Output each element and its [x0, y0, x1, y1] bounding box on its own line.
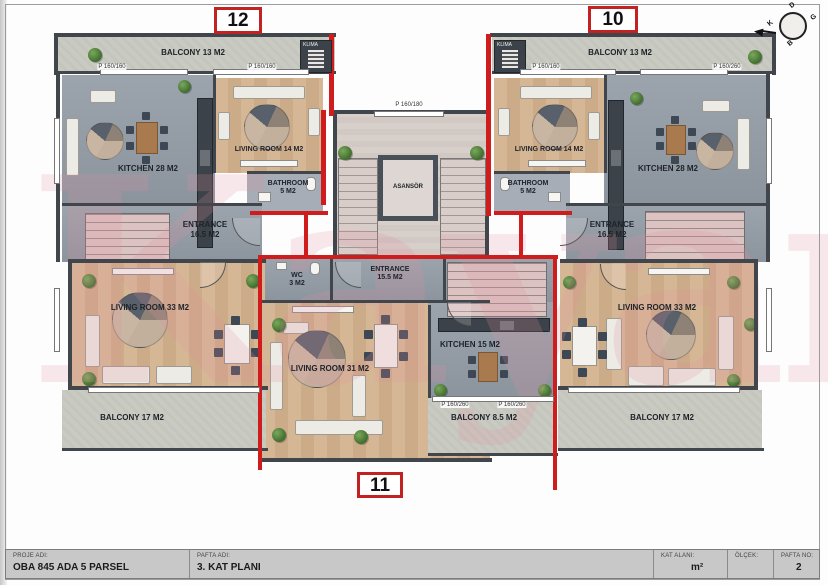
entrance-right-line1: ENTRANCE [590, 220, 634, 229]
plant [354, 430, 368, 444]
chair [562, 350, 571, 359]
wall [485, 216, 489, 258]
living-31-label: LIVING ROOM 31 M2 [291, 364, 369, 373]
proje-adi-value: OBA 845 ADA 5 PARSEL [13, 562, 129, 573]
pafta-no-label: PAFTA NO: [781, 553, 813, 559]
chair [656, 128, 664, 136]
chair [214, 348, 223, 357]
dining-table [478, 352, 498, 382]
chair [671, 156, 679, 164]
stairs-lower-left [85, 213, 170, 262]
compass-west-letter: B [786, 39, 794, 48]
tv-console [112, 268, 174, 275]
entrance-mid-line2: 15.5 M2 [377, 274, 402, 281]
wall [330, 259, 333, 300]
balcony-13-right-label: BALCONY 13 M2 [588, 48, 652, 57]
wall [604, 75, 607, 173]
wall [54, 33, 336, 37]
living-33-left-label: LIVING ROOM 33 M2 [111, 303, 189, 312]
armchair [588, 112, 600, 140]
armchair [308, 108, 320, 136]
chair [142, 156, 150, 164]
armchair [498, 108, 510, 136]
window-label: P 160/260 [440, 402, 469, 408]
chair [656, 142, 664, 150]
kat-alani-label: KAT ALANI: [661, 553, 694, 559]
stairs-lower-right [645, 211, 745, 262]
window [766, 288, 772, 352]
entrance-mid-label: ENTRANCE15.5 M2 [371, 266, 410, 282]
chair [578, 318, 587, 327]
chair [364, 352, 373, 361]
armchair [90, 90, 116, 103]
title-block: PROJE ADI: OBA 845 ADA 5 PARSEL PAFTA AD… [5, 549, 820, 579]
chair [468, 356, 476, 364]
chair [500, 356, 508, 364]
sofa [668, 368, 716, 386]
kat-alani-value: m² [691, 562, 703, 573]
tv-console [292, 306, 354, 313]
entrance-right-label: ENTRANCE16.5 M2 [590, 220, 634, 240]
stove [200, 150, 210, 166]
chair [468, 370, 476, 378]
red-wall [304, 215, 308, 259]
wall [494, 171, 570, 174]
window-label: P 160/160 [247, 64, 276, 70]
bathroom-left-label: BATHROOM5 M2 [268, 180, 309, 196]
living-14-left-label: LIVING ROOM 14 M2 [235, 146, 303, 153]
balcony-13-left-label: BALCONY 13 M2 [161, 48, 225, 57]
plant [272, 428, 286, 442]
round-rug [244, 104, 290, 150]
sofa [66, 118, 79, 176]
round-rug [86, 122, 124, 160]
window [54, 288, 60, 352]
wall [428, 305, 431, 398]
plant [630, 92, 643, 105]
red-wall [321, 110, 326, 205]
sofa [270, 342, 283, 410]
window [766, 118, 772, 184]
chair [126, 142, 134, 150]
bathroom-left-line2: 5 M2 [280, 188, 296, 195]
chair [671, 116, 679, 124]
sofa [295, 420, 383, 435]
bathroom-right-line2: 5 M2 [520, 188, 536, 195]
wall [333, 112, 337, 258]
sofa [156, 366, 192, 384]
title-block-divider [653, 550, 654, 578]
entrance-mid-line1: ENTRANCE [371, 266, 410, 273]
round-rug [532, 104, 578, 150]
chair [160, 142, 168, 150]
olcek-label: ÖLÇEK: [735, 553, 758, 559]
kitchen-15-label: KITCHEN 15 M2 [440, 340, 500, 349]
dining-table [136, 122, 158, 154]
round-rug [696, 132, 734, 170]
kitchen-28-right-label: KITCHEN 28 M2 [638, 164, 698, 173]
wall [68, 259, 266, 263]
balcony-rail [568, 387, 740, 393]
compass: K D G B [752, 2, 824, 48]
wall [213, 75, 216, 173]
armchair [702, 100, 730, 112]
klima-vent [502, 50, 518, 68]
unit-10-label: 10 [588, 6, 638, 33]
proje-adi-label: PROJE ADI: [13, 553, 48, 559]
tv-console [528, 160, 586, 167]
wall [428, 453, 558, 456]
entrance-left-label: ENTRANCE16.5 M2 [183, 220, 227, 240]
red-wall [494, 211, 572, 215]
stairs-hall-left [338, 158, 378, 255]
red-wall [250, 211, 328, 215]
compass-circle [779, 12, 807, 40]
compass-east-letter: D [788, 1, 796, 10]
chair [399, 352, 408, 361]
wall [566, 203, 766, 206]
armchair [218, 112, 230, 140]
chair [688, 128, 696, 136]
chair [142, 112, 150, 120]
chair [500, 370, 508, 378]
window [374, 111, 444, 117]
wall [54, 33, 58, 75]
title-block-divider [773, 550, 774, 578]
dining-table [572, 326, 597, 366]
balcony-rail [88, 387, 260, 393]
elevator-label: ASANSÖR [393, 184, 423, 190]
plant [272, 318, 286, 332]
plant [178, 80, 191, 93]
plant [82, 274, 96, 288]
chair [231, 366, 240, 375]
chair [231, 316, 240, 325]
round-rug [112, 292, 168, 348]
wall [68, 259, 72, 390]
stove [500, 321, 514, 330]
klima-vent [308, 50, 324, 68]
sofa [85, 315, 100, 367]
kitchen-28-left-label: KITCHEN 28 M2 [118, 164, 178, 173]
living-14-right-label: LIVING ROOM 14 M2 [515, 146, 583, 153]
north-arrow-line [762, 30, 776, 34]
chair [688, 142, 696, 150]
klima-right-label: KLIMA [497, 42, 512, 48]
plant [338, 146, 352, 160]
balcony-17-right-label: BALCONY 17 M2 [630, 413, 694, 422]
sofa [352, 375, 366, 417]
window-label: P 160/260 [712, 64, 741, 70]
chair [160, 126, 168, 134]
bathroom-right-line1: BATHROOM [508, 180, 549, 187]
chair [381, 369, 390, 378]
window-label: P 160/180 [394, 102, 423, 108]
sofa [102, 366, 150, 384]
living-33-right-label: LIVING ROOM 33 M2 [618, 303, 696, 312]
stairs-hall-right [440, 158, 486, 255]
wc-line1: WC [291, 272, 303, 279]
sofa [737, 118, 750, 170]
chair [598, 332, 607, 341]
red-wall [258, 255, 558, 259]
wall [247, 171, 323, 174]
pafta-adi-label: PAFTA ADI: [197, 553, 230, 559]
wall [443, 259, 446, 302]
window [54, 118, 60, 184]
title-block-divider [189, 550, 190, 578]
sofa [628, 366, 664, 386]
chair [399, 330, 408, 339]
red-wall [553, 255, 557, 490]
plant [88, 48, 102, 62]
red-wall [258, 255, 262, 470]
title-block-divider [727, 550, 728, 578]
dining-table [666, 125, 686, 155]
wall [754, 259, 758, 390]
plant [82, 372, 96, 386]
sink [276, 262, 287, 270]
bathroom-left-line1: BATHROOM [268, 180, 309, 187]
red-wall [486, 34, 491, 216]
round-rug [288, 330, 346, 388]
pafta-adi-value: 3. KAT PLANI [197, 562, 261, 573]
compass-south-letter: G [809, 13, 818, 22]
compass-north-letter: K [766, 19, 774, 28]
tv-console [648, 268, 710, 275]
wall [560, 259, 758, 263]
stove [611, 150, 621, 166]
window-label: P 160/260 [497, 402, 526, 408]
unit-12-label: 12 [214, 7, 262, 34]
plant [563, 276, 576, 289]
wc-label: WC3 M2 [289, 272, 305, 288]
chair [381, 315, 390, 324]
entrance-left-line1: ENTRANCE [183, 220, 227, 229]
entrance-left-line2: 16.5 M2 [191, 230, 220, 239]
plant [727, 276, 740, 289]
balcony-85-label: BALCONY 8.5 M2 [451, 413, 517, 422]
wall [558, 448, 764, 451]
scan-edge [0, 0, 7, 585]
tv-console [240, 160, 298, 167]
chair [562, 332, 571, 341]
balcony-17-left-label: BALCONY 17 M2 [100, 413, 164, 422]
plant [470, 146, 484, 160]
bathroom-right-label: BATHROOM5 M2 [508, 180, 549, 196]
chair [578, 368, 587, 377]
chair [126, 126, 134, 134]
unit-11-label: 11 [357, 472, 403, 498]
wall [62, 203, 262, 206]
sofa [520, 86, 592, 99]
sofa [233, 86, 305, 99]
wc-line2: 3 M2 [289, 280, 305, 287]
pafta-no-value: 2 [796, 562, 802, 573]
window-label: P 160/160 [97, 64, 126, 70]
plant [748, 50, 762, 64]
window-label: P 160/160 [531, 64, 560, 70]
floor-plan-sheet: Kayan [0, 0, 828, 585]
round-rug [646, 310, 696, 360]
dining-table [374, 324, 398, 368]
sofa [718, 316, 734, 370]
toilet [310, 262, 320, 275]
dining-table [224, 324, 250, 364]
entrance-right-line2: 16.5 M2 [598, 230, 627, 239]
red-wall [519, 215, 523, 259]
wall [62, 448, 268, 451]
wall [262, 458, 492, 462]
chair [214, 330, 223, 339]
wall [490, 33, 776, 37]
chair [598, 350, 607, 359]
sink [548, 192, 561, 202]
klima-left-label: KLIMA [303, 42, 318, 48]
sofa [606, 318, 622, 370]
chair [364, 330, 373, 339]
